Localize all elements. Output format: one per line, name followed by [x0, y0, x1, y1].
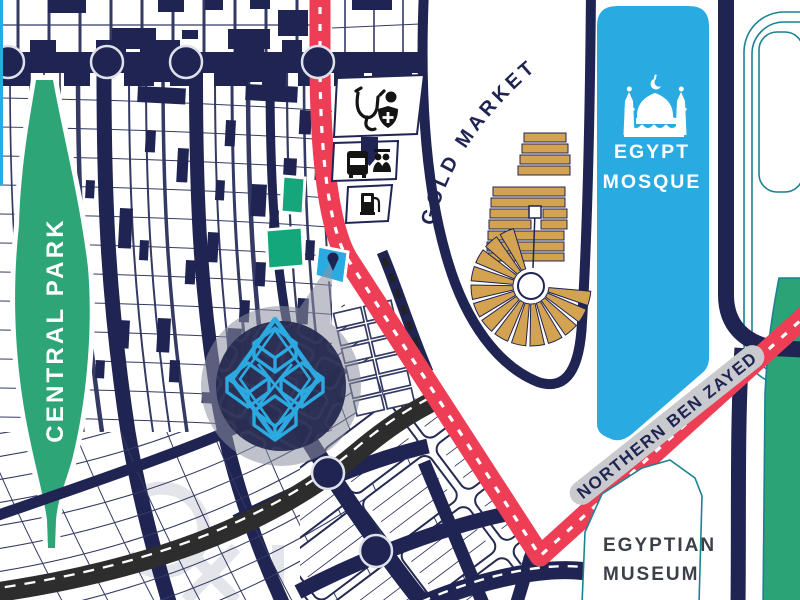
- svg-text:EGYPTIAN: EGYPTIAN: [603, 535, 716, 556]
- svg-text:CENTRAL PARK: CENTRAL PARK: [42, 217, 69, 443]
- svg-text:EGYPT: EGYPT: [614, 141, 690, 163]
- svg-text:MOSQUE: MOSQUE: [603, 171, 702, 193]
- svg-text:MUSEUM: MUSEUM: [603, 564, 699, 585]
